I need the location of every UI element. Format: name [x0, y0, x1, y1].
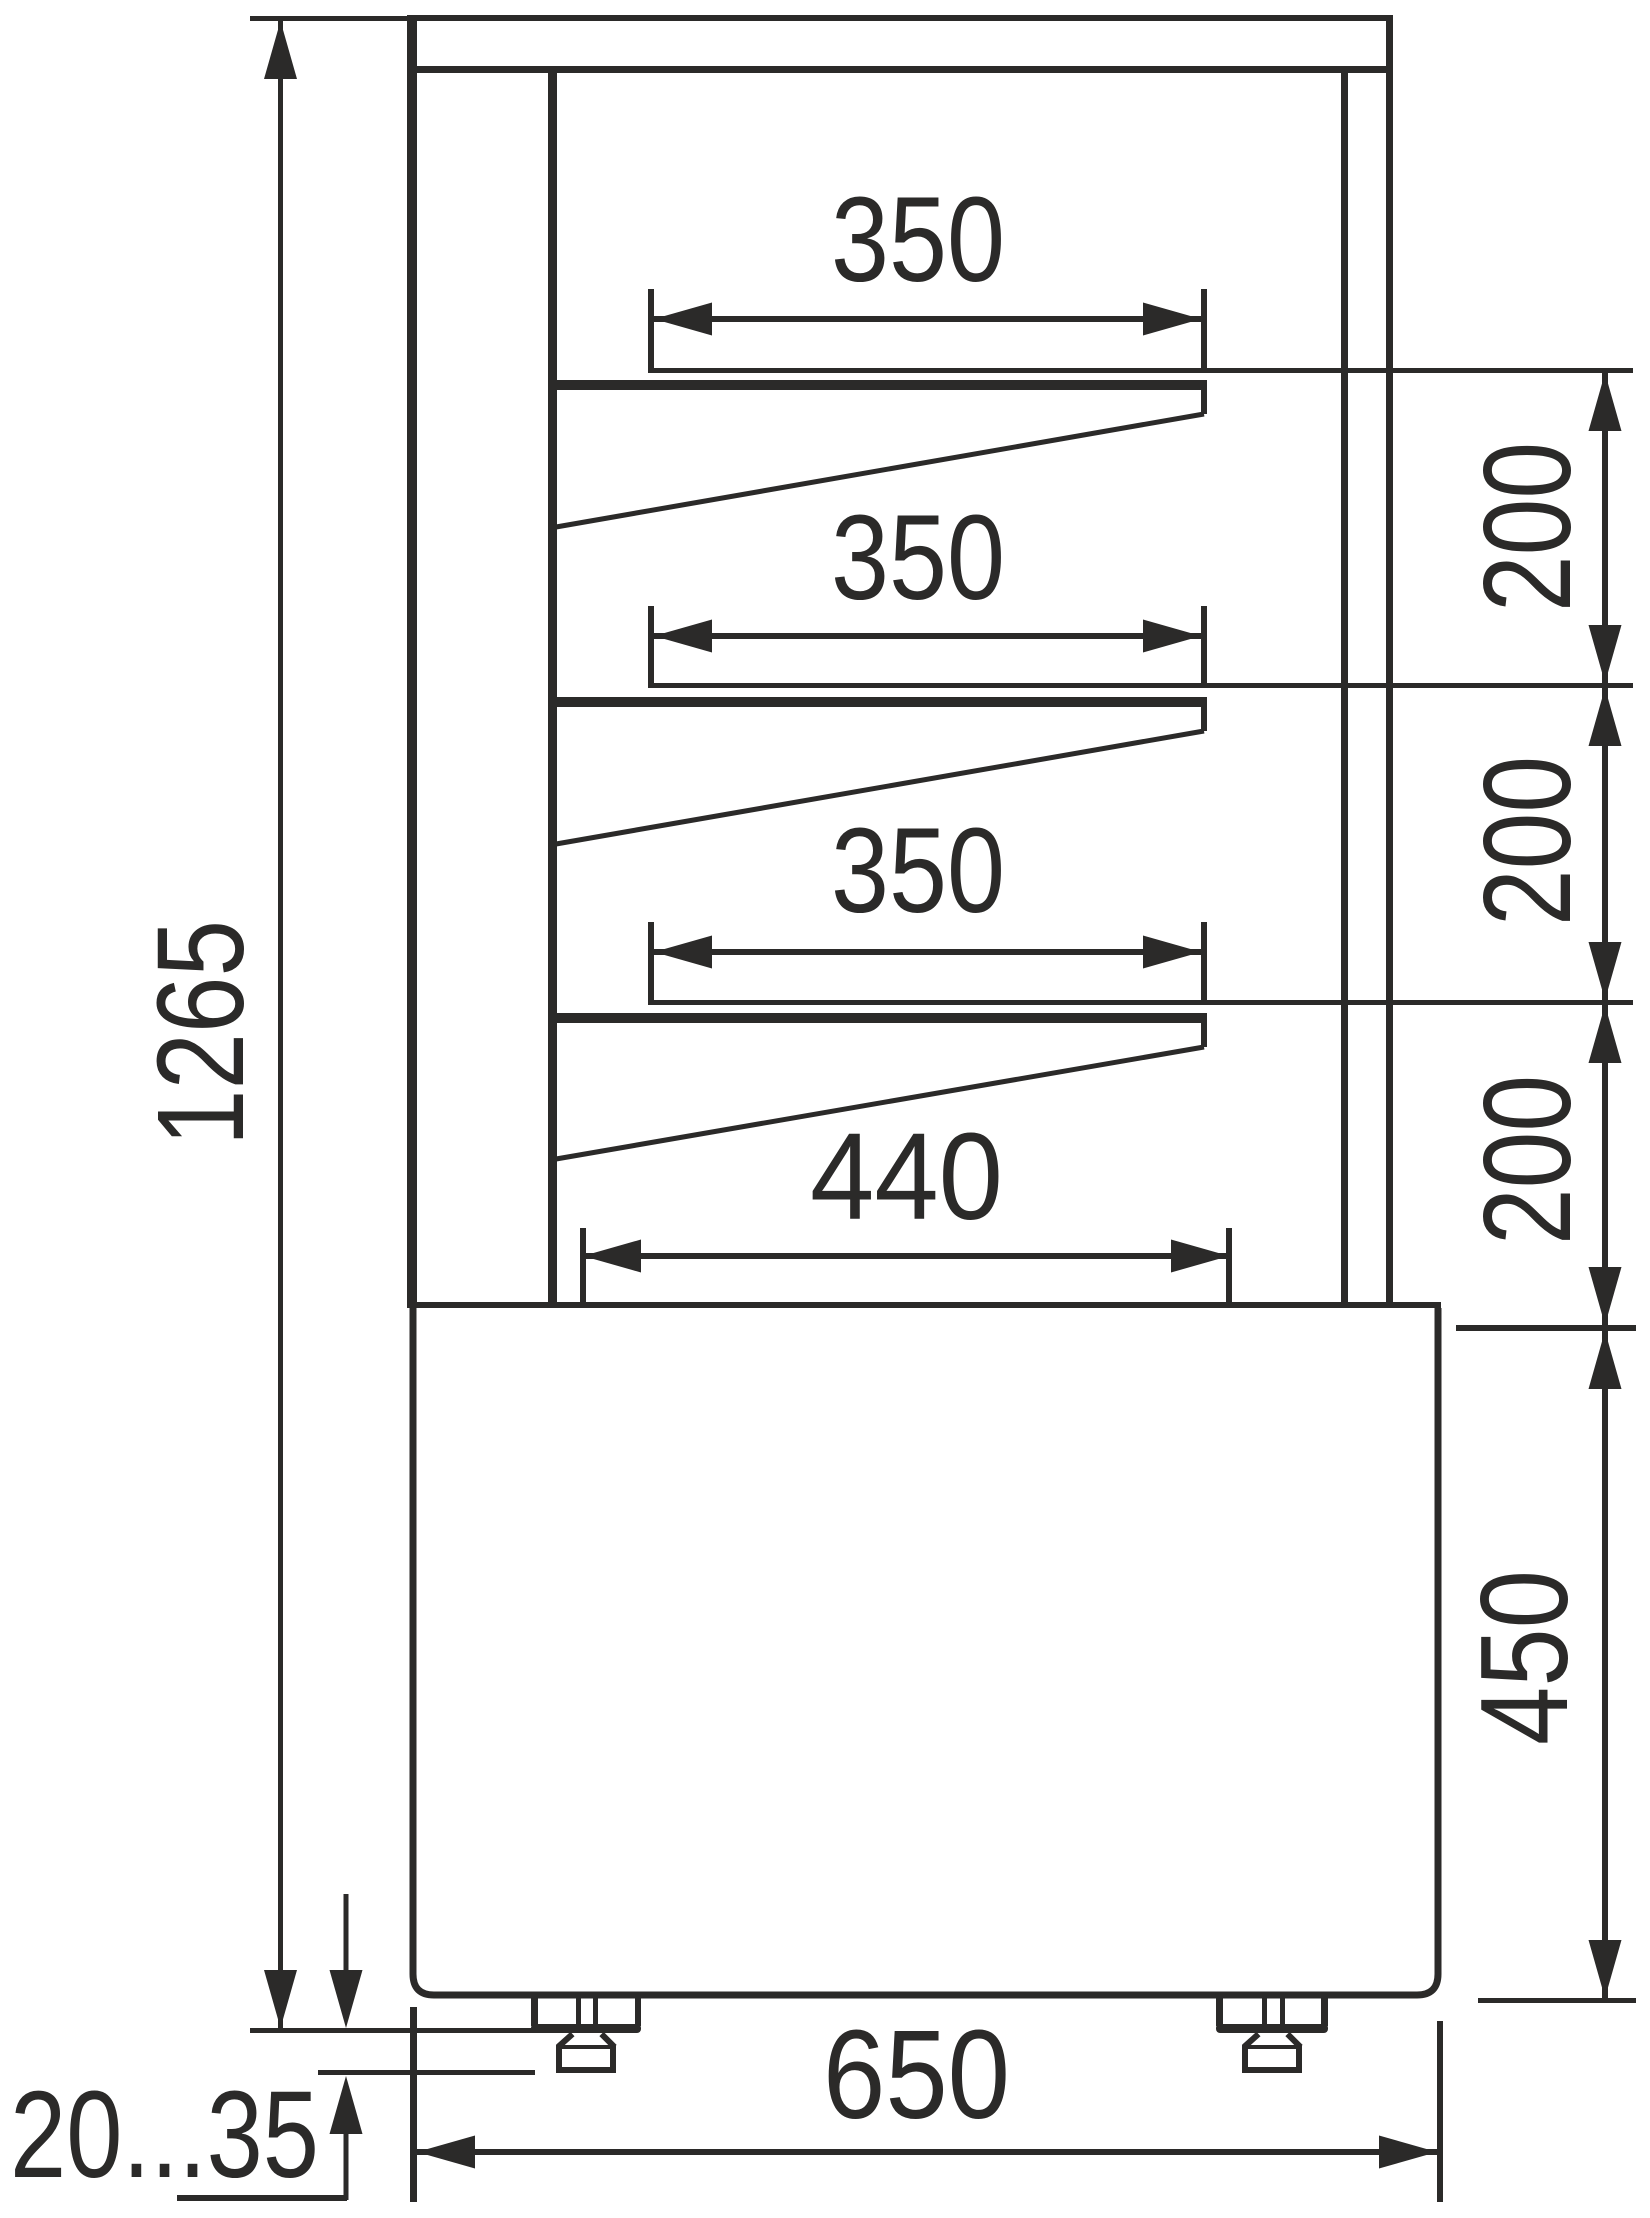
svg-text:350: 350 — [831, 489, 1005, 625]
svg-text:650: 650 — [823, 2004, 1010, 2145]
svg-text:1265: 1265 — [133, 920, 270, 1146]
svg-text:450: 450 — [1456, 1570, 1594, 1745]
svg-text:350: 350 — [831, 802, 1005, 938]
svg-text:200: 200 — [1459, 1075, 1597, 1245]
svg-text:200: 200 — [1459, 756, 1597, 926]
svg-text:20...35: 20...35 — [10, 2067, 319, 2204]
svg-text:200: 200 — [1459, 442, 1597, 612]
svg-text:440: 440 — [810, 1109, 1003, 1246]
svg-text:350: 350 — [831, 171, 1005, 307]
